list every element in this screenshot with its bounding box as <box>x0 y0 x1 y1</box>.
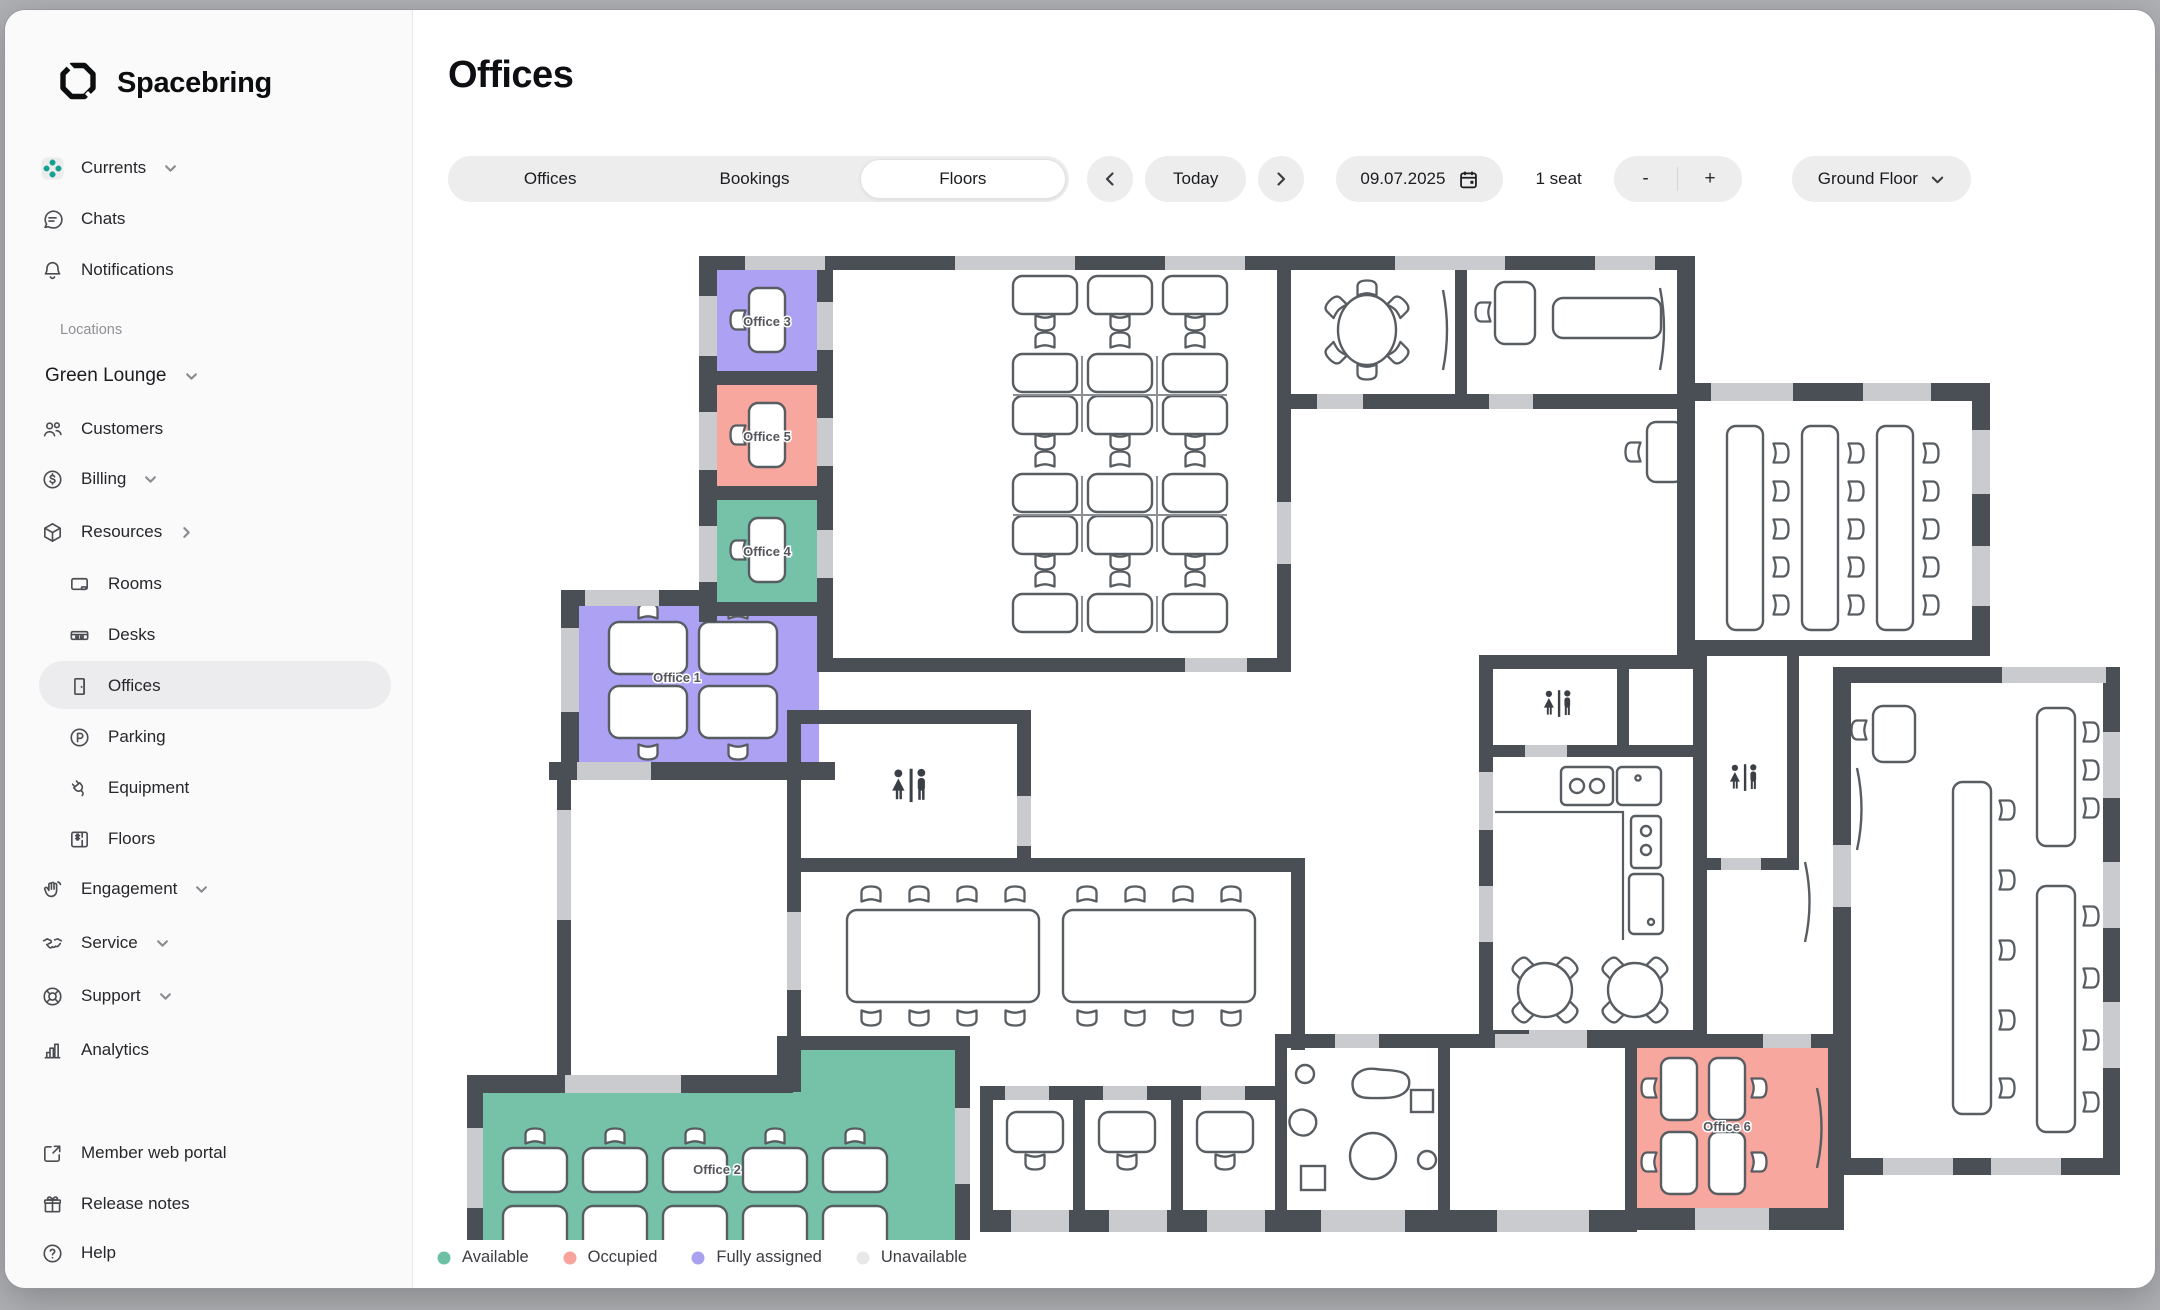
seat-stepper: - + <box>1614 156 1742 202</box>
date-value: 09.07.2025 <box>1360 169 1445 189</box>
chevron-down-icon <box>159 990 172 1003</box>
sidebar-item-release-notes[interactable]: Release notes <box>41 1182 391 1226</box>
chevron-down-icon <box>144 473 157 486</box>
gift-icon <box>41 1193 64 1216</box>
waving-hand-icon <box>41 878 64 901</box>
office-label: Office 2 <box>693 1162 741 1177</box>
date-picker[interactable]: 09.07.2025 <box>1336 156 1503 202</box>
sidebar-item-chats[interactable]: Chats <box>41 197 391 241</box>
wc-icon <box>1544 690 1570 717</box>
floor-plan: Office 3 Office 5 Office 4 Office 1 Offi… <box>465 250 2145 1240</box>
prev-day-button[interactable] <box>1087 156 1133 202</box>
help-icon <box>41 1242 64 1265</box>
sidebar-item-label: Offices <box>108 676 161 696</box>
customers-icon <box>41 418 64 441</box>
chevron-right-icon <box>180 526 193 539</box>
external-link-icon <box>41 1142 64 1165</box>
legend-item-fully-assigned: Fully assigned <box>691 1248 821 1267</box>
sidebar-item-equipment[interactable]: Equipment <box>41 766 391 810</box>
sidebar-item-resources[interactable]: Resources <box>41 510 391 554</box>
legend-label: Unavailable <box>881 1248 967 1267</box>
lifebuoy-icon <box>41 985 64 1008</box>
tab-offices[interactable]: Offices <box>448 156 652 202</box>
sidebar-item-notifications[interactable]: Notifications <box>41 248 391 292</box>
next-day-button[interactable] <box>1258 156 1304 202</box>
chevron-down-icon <box>1930 172 1945 187</box>
sidebar-item-label: Notifications <box>81 260 174 280</box>
chevron-down-icon <box>164 162 177 175</box>
toolbar: Offices Bookings Floors Today 09.07.2025… <box>448 156 1971 202</box>
wc-icon <box>1730 764 1756 791</box>
sidebar-item-label: Member web portal <box>81 1143 227 1163</box>
billing-icon <box>41 468 64 491</box>
legend: Available Occupied Fully assigned Unavai… <box>437 1248 967 1267</box>
sidebar-item-engagement[interactable]: Engagement <box>41 867 391 911</box>
kitchen-fixtures <box>1495 767 1663 940</box>
legend-label: Fully assigned <box>716 1248 821 1267</box>
legend-item-available: Available <box>437 1248 529 1267</box>
floorplan-icon <box>68 828 91 851</box>
chat-icon <box>41 208 64 231</box>
chevron-down-icon <box>195 883 208 896</box>
sidebar-item-member-web-portal[interactable]: Member web portal <box>41 1131 391 1175</box>
legend-label: Occupied <box>588 1248 658 1267</box>
tab-floors[interactable]: Floors <box>860 159 1066 199</box>
sidebar-item-label: Equipment <box>108 778 189 798</box>
office-label: Office 1 <box>653 670 701 685</box>
sidebar-item-label: Resources <box>81 522 162 542</box>
sidebar-item-help[interactable]: Help <box>41 1231 391 1275</box>
handshake-icon <box>41 932 64 955</box>
brand: Spacebring <box>57 60 272 107</box>
sidebar: Spacebring Currents Chats Notifications … <box>5 10 413 1288</box>
spacebring-logo-icon <box>57 60 99 107</box>
app-window: Spacebring Currents Chats Notifications … <box>5 10 2155 1288</box>
sidebar-item-label: Desks <box>108 625 155 645</box>
seat-plus-button[interactable]: + <box>1678 168 1742 190</box>
round-table <box>1338 295 1396 365</box>
location-name: Green Lounge <box>45 365 167 387</box>
floor-selector[interactable]: Ground Floor <box>1792 156 1971 202</box>
sidebar-item-label: Analytics <box>81 1040 149 1060</box>
sidebar-item-label: Release notes <box>81 1194 190 1214</box>
door-icon <box>68 675 91 698</box>
seats-label: 1 seat <box>1535 156 1581 202</box>
seat-minus-button[interactable]: - <box>1614 168 1678 190</box>
parking-icon <box>68 726 91 749</box>
office-label: Office 6 <box>1703 1119 1751 1134</box>
sidebar-item-analytics[interactable]: Analytics <box>41 1028 391 1072</box>
sidebar-item-floors[interactable]: Floors <box>41 817 391 861</box>
currents-icon <box>41 157 64 180</box>
cube-icon <box>41 521 64 544</box>
sidebar-item-service[interactable]: Service <box>41 921 391 965</box>
brand-name: Spacebring <box>117 67 272 100</box>
legend-dot <box>691 1251 705 1265</box>
floor-selector-value: Ground Floor <box>1818 169 1918 189</box>
legend-dot <box>856 1251 870 1265</box>
desks-icon <box>68 624 91 647</box>
legend-dot <box>563 1251 577 1265</box>
page-title: Offices <box>448 54 573 97</box>
round-table <box>1608 963 1662 1017</box>
bar-chart-icon <box>41 1039 64 1062</box>
round-table <box>1518 963 1572 1017</box>
sidebar-item-label: Chats <box>81 209 125 229</box>
sidebar-item-rooms[interactable]: Rooms <box>41 562 391 606</box>
chevron-left-icon <box>1102 171 1118 187</box>
office-label: Office 3 <box>743 314 791 329</box>
sidebar-item-label: Support <box>81 986 141 1006</box>
chevron-right-icon <box>1273 171 1289 187</box>
locations-section-label: Locations <box>60 322 122 338</box>
legend-item-unavailable: Unavailable <box>856 1248 967 1267</box>
sidebar-item-label: Service <box>81 933 138 953</box>
legend-label: Available <box>462 1248 529 1267</box>
legend-dot <box>437 1251 451 1265</box>
calendar-icon <box>1458 169 1479 190</box>
sidebar-item-currents[interactable]: Currents <box>41 146 391 190</box>
office-label: Office 5 <box>743 429 791 444</box>
wc-icon <box>892 769 925 802</box>
sidebar-item-label: Billing <box>81 469 126 489</box>
location-selector[interactable]: Green Lounge <box>41 354 391 398</box>
lounge-furniture <box>1289 1065 1436 1190</box>
sidebar-item-label: Engagement <box>81 879 177 899</box>
tab-bookings[interactable]: Bookings <box>652 156 856 202</box>
sidebar-item-label: Customers <box>81 419 163 439</box>
legend-item-occupied: Occupied <box>563 1248 658 1267</box>
sidebar-item-parking[interactable]: Parking <box>41 715 391 759</box>
sidebar-item-offices[interactable]: Offices <box>41 664 391 708</box>
chevron-down-icon <box>185 370 198 383</box>
rooms-icon <box>68 573 91 596</box>
chevron-down-icon <box>156 937 169 950</box>
view-tabs: Offices Bookings Floors <box>448 156 1069 202</box>
sidebar-item-billing[interactable]: Billing <box>41 457 391 501</box>
sidebar-item-label: Parking <box>108 727 166 747</box>
office-label: Office 4 <box>743 544 791 559</box>
plug-icon <box>68 777 91 800</box>
sidebar-item-label: Floors <box>108 829 155 849</box>
bell-icon <box>41 259 64 282</box>
sidebar-item-customers[interactable]: Customers <box>41 407 391 451</box>
sidebar-item-desks[interactable]: Desks <box>41 613 391 657</box>
sidebar-item-label: Help <box>81 1243 116 1263</box>
sidebar-item-support[interactable]: Support <box>41 974 391 1018</box>
today-button[interactable]: Today <box>1145 156 1246 202</box>
sidebar-item-label: Currents <box>81 158 146 178</box>
sidebar-item-label: Rooms <box>108 574 162 594</box>
